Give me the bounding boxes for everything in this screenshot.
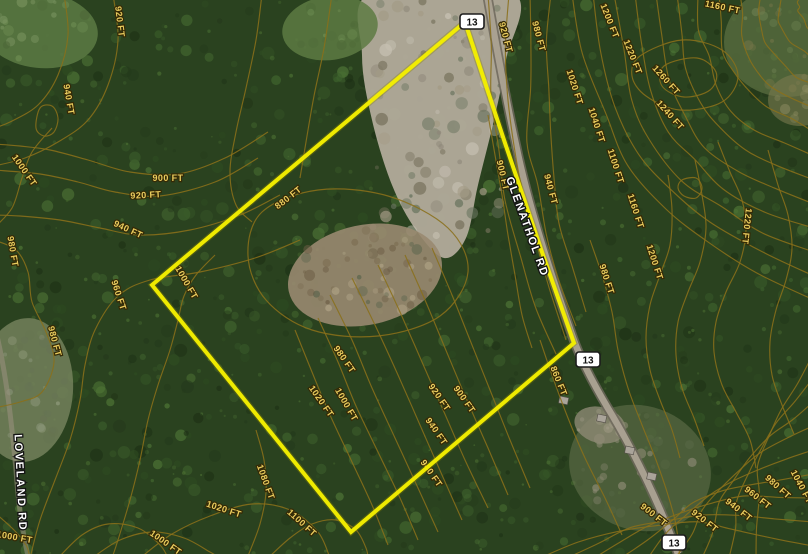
route-13-shield: 13 <box>576 352 600 367</box>
building <box>625 446 635 455</box>
route-13-shield: 13 <box>662 535 686 550</box>
route-13-shield: 13 <box>460 14 484 29</box>
contour-label: 920 FT <box>130 189 161 201</box>
satellite-topo-map: 920 FT940 FT1000 FT900 FT920 FT940 FT960… <box>0 0 808 554</box>
building <box>647 472 657 481</box>
building <box>597 414 607 423</box>
map-viewport[interactable]: 920 FT940 FT1000 FT900 FT920 FT940 FT960… <box>0 0 808 554</box>
route-shield-number: 13 <box>466 18 478 29</box>
contour-label: 900 FT <box>153 173 184 183</box>
route-shield-number: 13 <box>582 356 594 367</box>
route-shield-number: 13 <box>668 539 680 550</box>
